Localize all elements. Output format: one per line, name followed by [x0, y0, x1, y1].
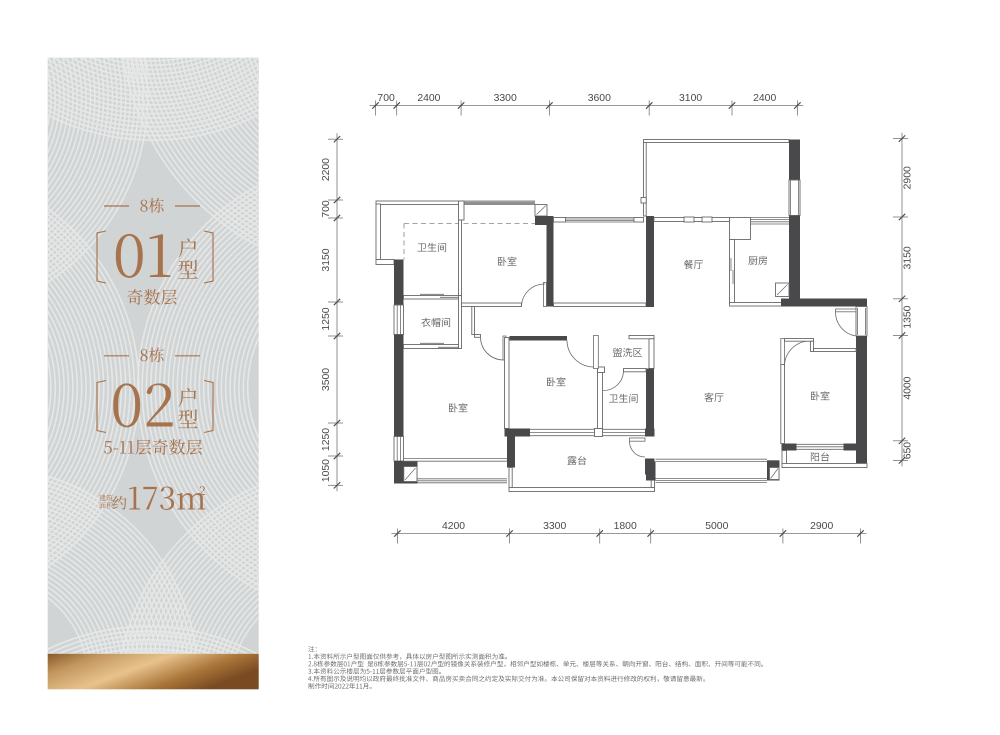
svg-text:5000: 5000 — [705, 521, 728, 532]
svg-text:2200: 2200 — [321, 158, 332, 181]
svg-text:2900: 2900 — [903, 166, 914, 189]
svg-text:3300: 3300 — [494, 93, 517, 104]
svg-text:2400: 2400 — [417, 93, 440, 104]
svg-text:700: 700 — [321, 200, 332, 218]
svg-text:1350: 1350 — [903, 305, 914, 328]
svg-text:3300: 3300 — [543, 521, 566, 532]
svg-text:4200: 4200 — [442, 521, 465, 532]
svg-text:3100: 3100 — [679, 93, 702, 104]
svg-text:2900: 2900 — [810, 521, 833, 532]
svg-text:2400: 2400 — [753, 93, 776, 104]
svg-text:1250: 1250 — [321, 307, 332, 330]
svg-text:1250: 1250 — [321, 428, 332, 451]
svg-text:1050: 1050 — [321, 459, 332, 482]
svg-text:650: 650 — [903, 442, 914, 460]
svg-text:700: 700 — [377, 93, 395, 104]
svg-text:3150: 3150 — [321, 248, 332, 271]
svg-text:4000: 4000 — [903, 376, 914, 399]
svg-text:3500: 3500 — [321, 368, 332, 391]
svg-text:1800: 1800 — [614, 521, 637, 532]
svg-text:3150: 3150 — [903, 246, 914, 269]
svg-text:3600: 3600 — [588, 93, 611, 104]
